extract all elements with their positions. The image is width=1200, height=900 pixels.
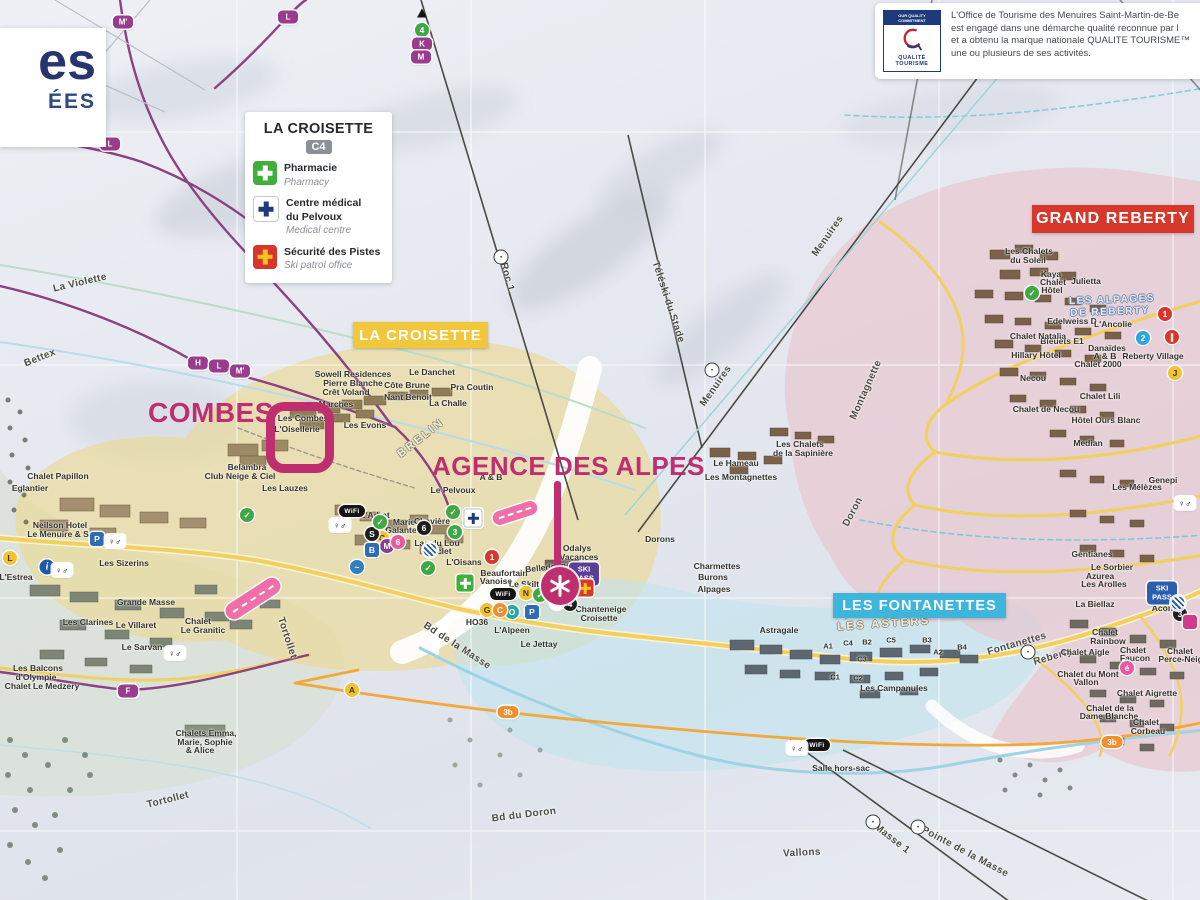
ski-patrol-icon [577,580,594,597]
quality-notice-text: L'Office de Tourisme des Menuires Saint-… [951,10,1190,72]
legend-grid-ref-badge: C4 [306,140,332,154]
checkpoint-icon: ✓ [446,505,460,519]
toilets-icon: ♀♂ [787,742,807,755]
bus-icon: B [365,543,379,557]
toilets-icon: ♀♂ [165,647,185,660]
gondola-icon: ▪ [705,363,720,378]
map-badge: K [412,38,432,51]
quality-line: est engagé dans une démarche qualité rec… [951,23,1190,36]
toilets-icon: ♀♂ [105,535,125,548]
wifi-icon: WiFi [339,505,365,517]
quality-tourism-panel: OUR QUALITY COMMITMENT QUALITÉ TOURISME … [875,3,1200,79]
map-badge: 6 [417,521,431,535]
legend-label-fr: Sécurité des Pistes [284,246,380,258]
legend-item-ski-patrol: Sécurité des Pistes Ski patrol office [253,245,384,272]
wifi-icon: WiFi [490,588,516,600]
medical-centre-icon [464,509,483,528]
zone-badge-la-croisette[interactable]: LA CROISETTE [353,322,488,348]
qualite-q-mark-icon [897,25,927,53]
ski-patrol-cross-icon [253,245,277,269]
map-badge: 3b [498,706,519,718]
map-badge: A [345,683,359,697]
pharmacy-icon [457,575,474,592]
map-badge: 4 [415,23,429,37]
zone-badge-grand-reberty[interactable]: GRAND REBERTY [1032,205,1194,233]
legend-item-medical: Centre médical du Pelvoux Medical centre [253,196,384,237]
combes-annotation-label: COMBES [148,397,274,429]
map-badge: H [188,357,208,370]
map-badge: L [278,11,298,24]
map-badge: L [209,360,229,373]
qualite-tourisme-logo: OUR QUALITY COMMITMENT QUALITÉ TOURISME [883,10,941,72]
map-badge: J [1168,366,1182,380]
gondola-icon: ▪ [494,250,509,265]
resort-map-page: { "logo_box": { "line1": "es", "line2": … [0,0,1200,900]
checkpoint-icon: ✓ [373,515,387,529]
map-badge: O [505,605,519,619]
legend-label-en: Pharmacy [284,177,329,188]
agence-pointer-line [554,481,561,575]
striped-marker-icon [423,543,438,558]
striped-marker-icon [1171,596,1186,611]
qualite-logo-caption: QUALITÉ TOURISME [884,53,940,69]
toilets-icon: ♀♂ [52,564,72,577]
gondola-icon: ▪ [911,820,926,835]
parking-icon: P [525,605,539,619]
shield-icon [1183,615,1197,629]
checkpoint-icon: ✓ [421,561,435,575]
pharmacy-cross-icon [253,161,277,185]
map-badge: 3 [448,525,462,539]
map-badge: L [3,551,17,565]
map-badge: 2 [1136,331,1150,345]
map-badge: G [480,603,494,617]
checkpoint-icon: ✓ [1025,286,1039,300]
resort-logo-box: es ÉES [0,28,106,147]
map-badge: M' [113,16,133,29]
map-badge: M [411,51,431,64]
nav-arrow-icon [417,9,427,18]
map-badge: 1 [485,550,499,564]
map-badge: 6 [391,535,405,549]
resort-logo-subtext: ÉES [0,90,96,114]
gondola-icon: ▪ [1021,645,1036,660]
legend-item-pharmacy: Pharmacie Pharmacy [253,161,384,188]
wifi-icon: WiFi [804,739,830,751]
legend-label-en: Medical centre [286,225,351,236]
map-badge: é [1120,661,1134,675]
map-badge: S [365,527,379,541]
map-badge: M' [230,365,250,378]
qualite-logo-banner: OUR QUALITY COMMITMENT [884,11,940,25]
agence-des-alpes-annotation-label: AGENCE DES ALPES [432,451,705,482]
toilets-icon: ♀♂ [330,519,350,532]
map-badge: 3b [1102,736,1123,748]
quality-line: une ou plusieurs de ses activités. [951,48,1190,61]
medical-cross-icon [253,196,279,222]
legend-label-fr: Pharmacie [284,162,337,174]
combes-highlight-box [266,402,334,473]
quality-line: L'Office de Tourisme des Menuires Saint-… [951,10,1190,23]
checkpoint-icon: ✓ [240,508,254,522]
restaurant-icon: ∥ [1165,330,1179,344]
map-badge: 1 [1158,307,1172,321]
quality-line: et a obtenu la marque nationale QUALITE … [951,35,1190,48]
legend-label-fr: Centre médical du Pelvoux [286,197,361,223]
legend-title: LA CROISETTE [253,121,384,137]
map-badge-layer: M'LL4KMHLM'FLAJGNC3b3bS643F11∥23✓✓✓✓✓✓M6… [0,0,1200,900]
legend-label-en: Ski patrol office [284,260,352,271]
pool-icon: ~ [350,560,364,574]
map-badge: F [118,685,138,698]
toilets-icon: ♀♂ [1175,497,1195,510]
zone-badge-les-fontanettes[interactable]: LES FONTANETTES [833,593,1006,618]
resort-logo-text: es [0,34,96,90]
parking-icon: P [90,532,104,546]
gondola-icon: ▪ [866,815,881,830]
agence-location-marker[interactable] [541,567,579,605]
map-badge: C [493,603,507,617]
legend-panel: LA CROISETTE C4 Pharmacie Pharmacy Centr… [245,112,392,283]
map-badge: N [519,586,533,600]
